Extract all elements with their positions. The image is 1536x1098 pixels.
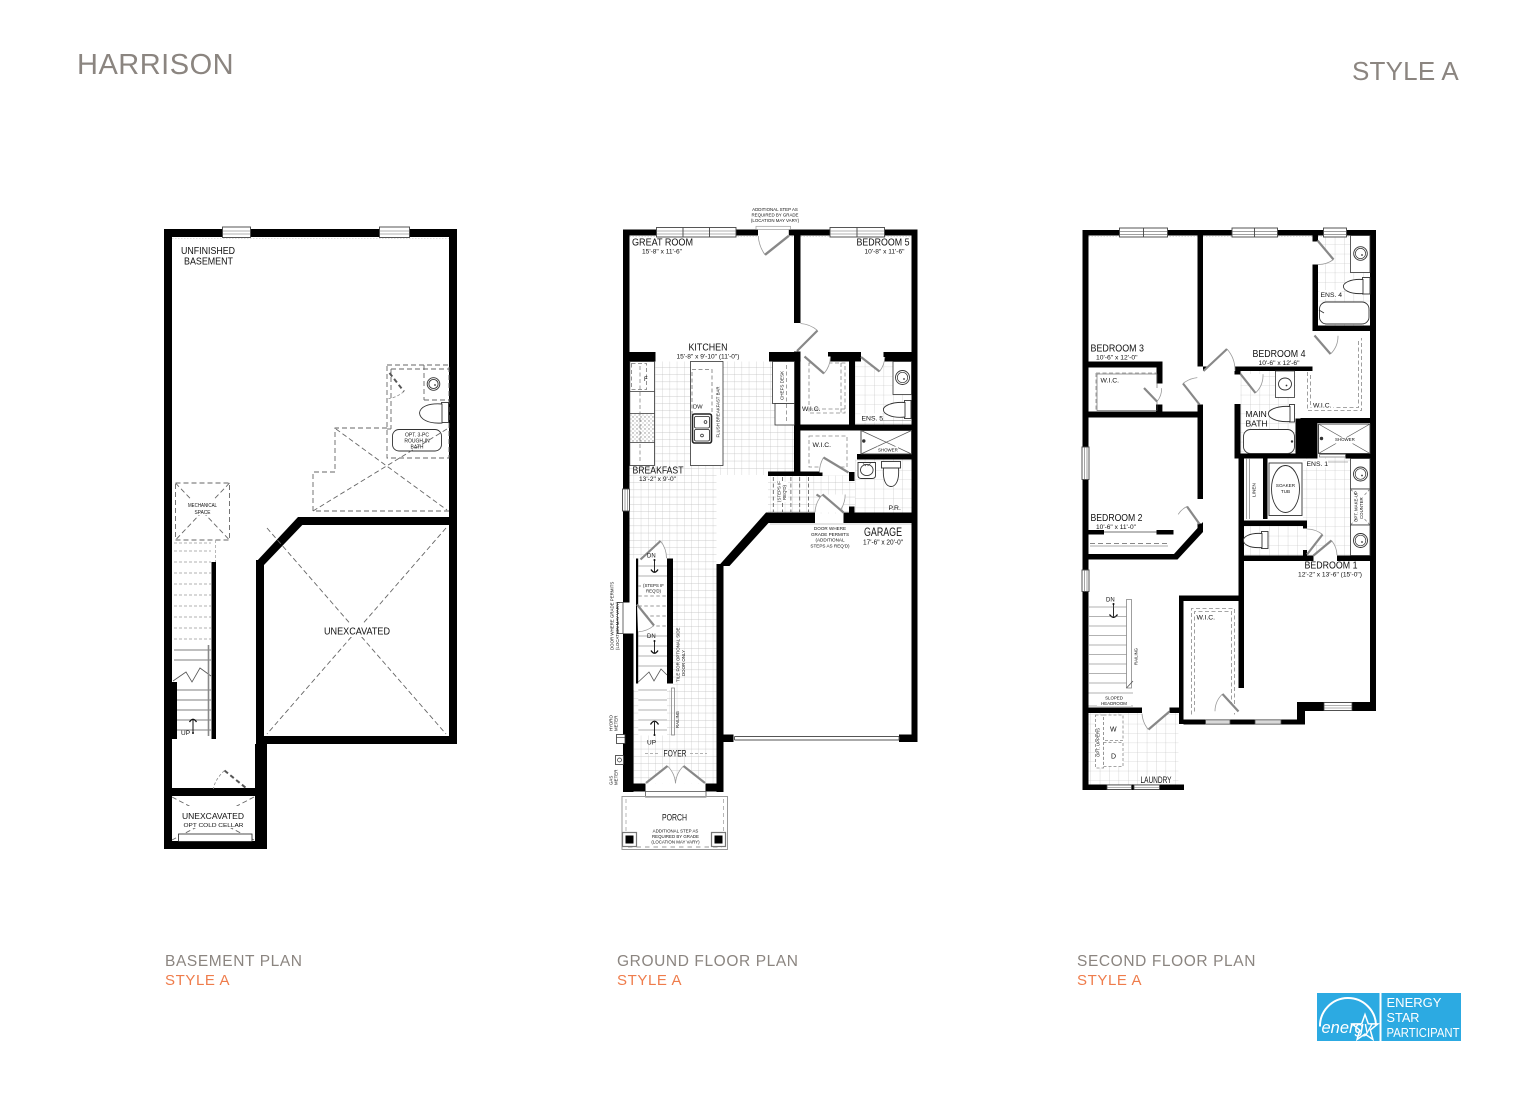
svg-text:D: D: [1111, 754, 1116, 761]
svg-text:DN: DN: [647, 634, 656, 640]
svg-text:KITCHEN: KITCHEN: [689, 342, 728, 354]
svg-text:15'-8" x 11'-6": 15'-8" x 11'-6": [642, 249, 683, 256]
svg-text:OPT COLD CELLAR: OPT COLD CELLAR: [184, 823, 244, 829]
svg-text:BREAKFAST: BREAKFAST: [633, 465, 684, 477]
svg-text:F: F: [644, 377, 648, 383]
svg-text:(STEPS IF: (STEPS IF: [777, 481, 782, 502]
svg-text:17'-6" x 20'-0": 17'-6" x 20'-0": [863, 538, 903, 547]
svg-text:CHEFS DESK: CHEFS DESK: [780, 370, 786, 400]
svg-text:ENERGY: ENERGY: [1387, 995, 1442, 1010]
svg-text:BASEMENT: BASEMENT: [184, 256, 233, 268]
svg-text:10'-6" x 12'-6": 10'-6" x 12'-6": [1259, 360, 1301, 367]
svg-text:DOOR WHERE GRADE PERMITS: DOOR WHERE GRADE PERMITS: [610, 582, 615, 650]
svg-text:13'-2" x 9'-0": 13'-2" x 9'-0": [639, 476, 677, 483]
svg-text:OPT. UPPERS: OPT. UPPERS: [1096, 728, 1101, 757]
svg-text:SPACE: SPACE: [195, 510, 212, 516]
svg-text:PARTICIPANT: PARTICIPANT: [1387, 1025, 1460, 1040]
svg-text:BEDROOM 1: BEDROOM 1: [1305, 560, 1358, 572]
svg-text:W.I.C.: W.I.C.: [1313, 403, 1332, 410]
svg-text:FOYER: FOYER: [664, 749, 687, 760]
svg-text:MAIN: MAIN: [1246, 409, 1267, 419]
svg-text:W.I.C.: W.I.C.: [1101, 378, 1120, 385]
svg-text:MECHANICAL: MECHANICAL: [188, 503, 217, 509]
svg-text:PORCH: PORCH: [662, 813, 687, 824]
svg-text:SHOWER: SHOWER: [1335, 437, 1355, 442]
svg-text:BATH: BATH: [1246, 419, 1268, 429]
svg-text:LINEN: LINEN: [1252, 482, 1258, 497]
svg-text:REQUIRED BY GRADE: REQUIRED BY GRADE: [751, 212, 798, 217]
svg-text:RAILING: RAILING: [675, 710, 680, 728]
svg-text:DN: DN: [647, 554, 656, 560]
svg-text:TUB: TUB: [1281, 489, 1290, 494]
svg-text:SHOWER: SHOWER: [878, 448, 898, 453]
svg-text:LAUNDRY: LAUNDRY: [1141, 775, 1172, 786]
svg-text:OPT. MAKE-UP: OPT. MAKE-UP: [1354, 491, 1359, 522]
svg-text:STEPS AS REQ'D): STEPS AS REQ'D): [810, 543, 850, 548]
svg-text:UP: UP: [181, 730, 190, 737]
svg-text:GREAT ROOM: GREAT ROOM: [632, 237, 693, 249]
svg-text:W.I.C.: W.I.C.: [1197, 615, 1216, 622]
svg-text:DOOR ONLY: DOOR ONLY: [681, 650, 686, 676]
svg-text:REQ'D): REQ'D): [646, 589, 662, 594]
svg-text:10'-6" x 12'-0": 10'-6" x 12'-0": [1096, 355, 1138, 362]
svg-text:(LOCATION MAY VARY): (LOCATION MAY VARY): [615, 601, 620, 650]
svg-text:BEDROOM 5: BEDROOM 5: [857, 237, 910, 249]
svg-text:(STEPS IF: (STEPS IF: [643, 583, 664, 588]
svg-text:P.R.: P.R.: [889, 505, 901, 512]
svg-text:W.I.C.: W.I.C.: [802, 406, 821, 413]
svg-text:METER: METER: [614, 716, 619, 731]
svg-text:(LOCATION MAY VARY): (LOCATION MAY VARY): [651, 840, 700, 845]
svg-text:BEDROOM 2: BEDROOM 2: [1091, 512, 1143, 524]
svg-text:BEDROOM 4: BEDROOM 4: [1253, 348, 1306, 360]
svg-text:ADDITIONAL STEP AS: ADDITIONAL STEP AS: [653, 829, 699, 834]
svg-text:STAR: STAR: [1387, 1010, 1420, 1025]
svg-text:RAILING: RAILING: [1134, 647, 1139, 665]
svg-text:DW: DW: [693, 405, 703, 411]
svg-text:ENS. 5: ENS. 5: [862, 416, 884, 423]
svg-text:METER: METER: [614, 770, 619, 785]
svg-text:FLUSH BREAKFAST BAR: FLUSH BREAKFAST BAR: [716, 386, 722, 437]
svg-text:DOOR WHERE: DOOR WHERE: [814, 526, 846, 531]
svg-text:(LOCATION MAY VARY): (LOCATION MAY VARY): [751, 218, 800, 223]
svg-text:REQ'D): REQ'D): [782, 484, 787, 500]
svg-text:SLOPED: SLOPED: [1105, 696, 1123, 701]
svg-text:ADDITIONAL STEP AS: ADDITIONAL STEP AS: [752, 207, 798, 212]
svg-text:12'-2" x 13'-6" (15'-0"): 12'-2" x 13'-6" (15'-0"): [1298, 572, 1362, 579]
svg-text:ENS. 1: ENS. 1: [1307, 461, 1329, 468]
svg-text:UNEXCAVATED: UNEXCAVATED: [182, 811, 244, 821]
svg-text:REQUIRED BY GRADE: REQUIRED BY GRADE: [652, 834, 699, 839]
svg-text:UNEXCAVATED: UNEXCAVATED: [324, 626, 390, 638]
svg-text:DN: DN: [1106, 598, 1115, 604]
svg-text:HEADROOM: HEADROOM: [1101, 701, 1127, 706]
svg-text:(ADDITIONAL: (ADDITIONAL: [815, 538, 845, 543]
svg-text:GRADE PERMITS: GRADE PERMITS: [811, 532, 849, 537]
svg-text:TILE FOR OPTIONAL SIDE: TILE FOR OPTIONAL SIDE: [676, 627, 681, 682]
svg-text:ENS. 4: ENS. 4: [1321, 292, 1343, 299]
svg-text:COUNTER: COUNTER: [1359, 497, 1364, 519]
svg-text:W: W: [1110, 727, 1117, 734]
svg-text:UP: UP: [647, 740, 656, 747]
svg-text:15'-8" x 9'-10" (11'-0"): 15'-8" x 9'-10" (11'-0"): [677, 354, 740, 361]
svg-text:10'-8" x 11'-6": 10'-8" x 11'-6": [865, 249, 906, 256]
svg-text:BEDROOM 3: BEDROOM 3: [1091, 343, 1145, 355]
svg-text:SOAKER: SOAKER: [1276, 483, 1296, 488]
svg-text:W.I.C.: W.I.C.: [813, 442, 832, 449]
svg-text:10'-6" x 11'-0": 10'-6" x 11'-0": [1096, 524, 1137, 531]
